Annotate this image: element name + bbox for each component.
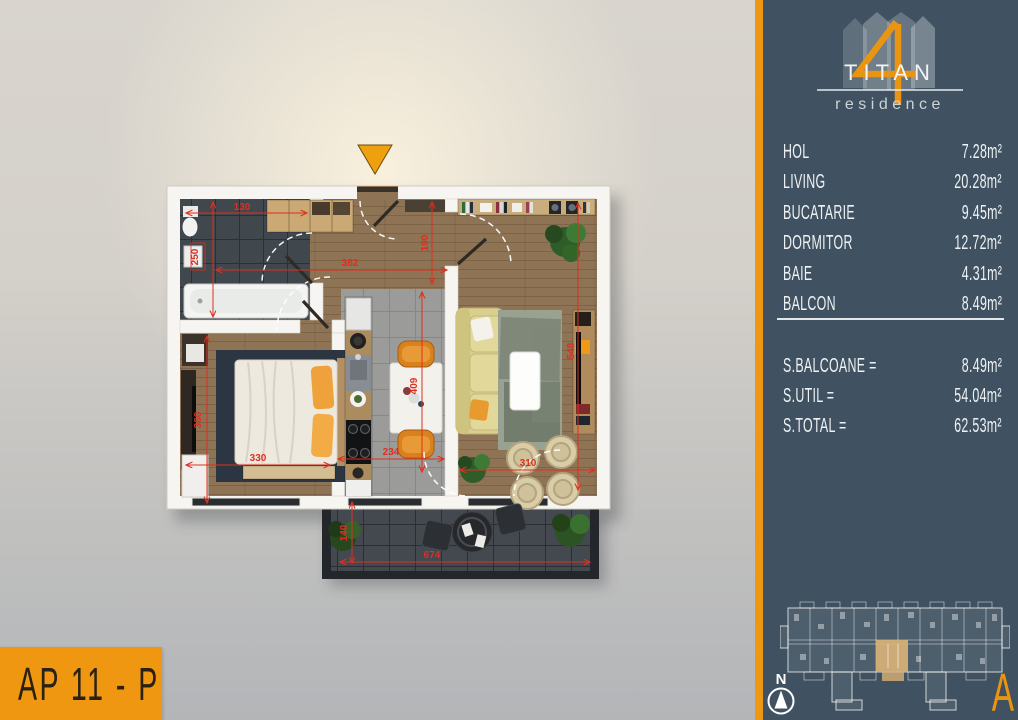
entrance-door <box>357 187 398 192</box>
room-label: BAIE <box>783 263 812 286</box>
side-panel: TITAN residence HOL 7.28m² LIVING 20.28m… <box>763 0 1018 720</box>
room-row: BUCATARIE 9.45m² <box>783 198 1002 229</box>
balcony-chair <box>494 503 527 536</box>
total-row: S.BALCOANE = 8.49m² <box>783 351 1002 381</box>
total-area: 8.49m² <box>962 355 1002 378</box>
totals-list: S.BALCOANE = 8.49m² S.UTIL = 54.04m² S.T… <box>783 351 1002 441</box>
compass-label: N <box>776 671 787 688</box>
apartment-label: AP 11 - P <box>18 657 160 711</box>
entrance-triangle-icon <box>358 145 392 174</box>
dim-kitchen-height: 409 <box>409 377 420 394</box>
logo-subtitle: residence <box>835 96 945 113</box>
balcony-chair <box>421 520 453 552</box>
room-row: DORMITOR 12.72m² <box>783 229 1002 260</box>
room-row: LIVING 20.28m² <box>783 168 1002 199</box>
pillow <box>311 365 335 409</box>
dim-balcony-height: 140 <box>339 524 350 541</box>
fridge <box>346 298 371 330</box>
room-label: BUCATARIE <box>783 202 855 225</box>
floorplan-svg: 130 250 382 190 360 330 409 234 548 310 … <box>0 0 755 720</box>
room-list: HOL 7.28m² LIVING 20.28m² BUCATARIE 9.45… <box>783 137 1002 320</box>
building-section-label: A <box>978 662 1014 720</box>
dim-bath-height: 250 <box>190 248 201 265</box>
total-row: S.TOTAL = 62.53m² <box>783 411 1002 441</box>
dim-hall-width: 382 <box>342 258 359 269</box>
dim-living-width: 310 <box>520 458 537 469</box>
room-area: 12.72m² <box>954 232 1002 255</box>
pillow <box>311 414 334 458</box>
titan-logo: TITAN residence <box>805 8 975 123</box>
dim-kitchen-width: 234 <box>383 447 400 458</box>
room-label: BALCON <box>783 293 836 316</box>
room-row: BALCON 8.49m² <box>783 290 1002 321</box>
room-area: 20.28m² <box>954 171 1002 194</box>
total-label: S.TOTAL = <box>783 415 847 438</box>
dim-bedroom-height: 360 <box>193 411 204 428</box>
compass-needle-icon <box>775 691 788 709</box>
room-area: 8.49m² <box>962 293 1002 316</box>
room-area: 9.45m² <box>962 202 1002 225</box>
room-row: HOL 7.28m² <box>783 137 1002 168</box>
total-label: S.BALCOANE = <box>783 355 877 378</box>
dim-bedroom-width: 330 <box>250 453 267 464</box>
compass-icon: N <box>765 670 805 718</box>
coffee-table <box>510 352 540 410</box>
floorplan-area: 130 250 382 190 360 330 409 234 548 310 … <box>0 0 755 720</box>
total-area: 54.04m² <box>954 385 1002 408</box>
total-row: S.UTIL = 54.04m² <box>783 381 1002 411</box>
accent-stripe <box>755 0 763 720</box>
room-label: HOL <box>783 141 809 164</box>
dim-balcony-width: 674 <box>424 550 441 561</box>
total-area: 62.53m² <box>954 415 1002 438</box>
page: 130 250 382 190 360 330 409 234 548 310 … <box>0 0 1018 720</box>
mini-building-plan <box>780 598 1010 716</box>
tv-console <box>573 310 595 434</box>
highlighted-unit <box>876 640 908 672</box>
room-label: LIVING <box>783 171 826 194</box>
total-label: S.UTIL = <box>783 385 834 408</box>
logo-name: TITAN <box>844 60 936 85</box>
panel-divider <box>777 318 1004 320</box>
dim-hall-height: 190 <box>420 234 431 251</box>
apartment-label-badge: AP 11 - P <box>0 647 162 720</box>
room-row: BAIE 4.31m² <box>783 259 1002 290</box>
dim-living-height: 548 <box>566 342 577 359</box>
dim-bath-width: 130 <box>234 202 251 213</box>
room-area: 7.28m² <box>962 141 1002 164</box>
room-label: DORMITOR <box>783 232 853 255</box>
windows <box>192 498 548 506</box>
sofa <box>456 308 504 434</box>
room-area: 4.31m² <box>962 263 1002 286</box>
